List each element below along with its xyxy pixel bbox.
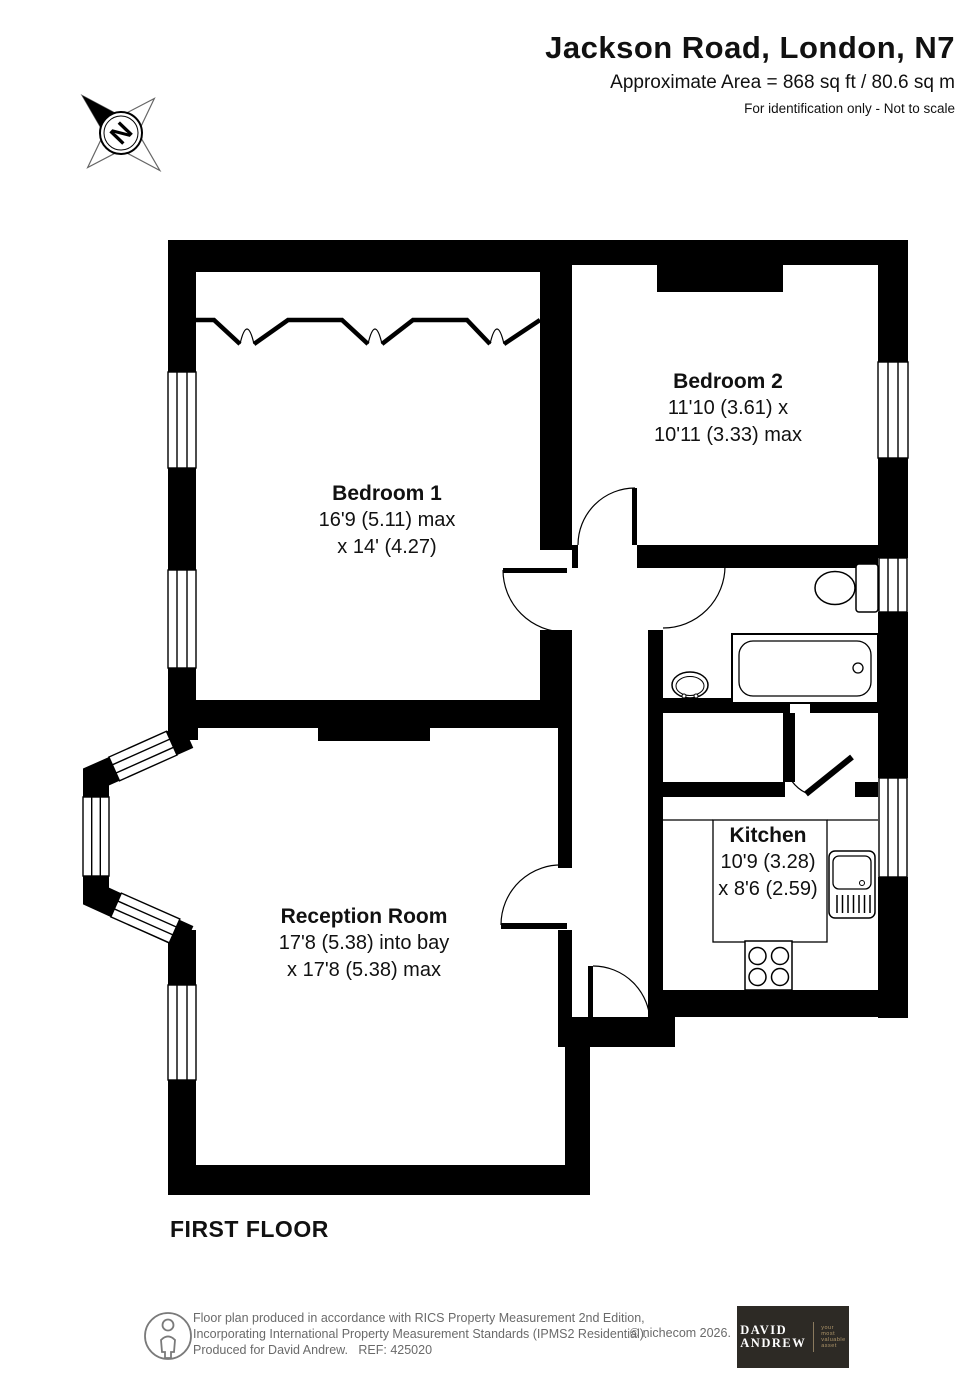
footer-line2: Incorporating International Property Mea… [193,1327,647,1341]
floorplan-page: Jackson Road, London, N7 Approximate Are… [0,0,980,1385]
floor-name: FIRST FLOOR [170,1216,329,1243]
bedroom1-door [503,568,567,632]
footer-disclaimer: Floor plan produced in accordance with R… [193,1310,647,1358]
room-dim: 17'8 (5.38) into bay [279,930,450,957]
toilet [815,564,878,612]
nichecom-copyright: © nichecom 2026. [630,1326,731,1340]
logo-tagline: your most valuable asset [821,1325,846,1349]
room-name: Bedroom 1 [319,480,456,507]
footer-line3: Produced for David Andrew. REF: 425020 [193,1343,432,1357]
room-dim: 10'11 (3.33) max [654,422,802,449]
bathtub [732,634,878,703]
bathroom-door [663,563,725,628]
david-andrew-logo: DAVID ANDREW your most valuable asset [737,1306,849,1368]
room-label-bedroom1: Bedroom 1 16'9 (5.11) max x 14' (4.27) [319,480,456,561]
logo-divider [813,1322,814,1352]
bathroom-fixtures [672,564,878,703]
kitchen-door [785,757,852,794]
hob [745,941,792,990]
logo-name: DAVID ANDREW [740,1324,806,1350]
room-label-kitchen: Kitchen 10'9 (3.28) x 8'6 (2.59) [718,822,817,903]
room-label-reception: Reception Room 17'8 (5.38) into bay x 17… [279,903,450,984]
kitchen-sink [829,851,875,918]
room-name: Reception Room [279,903,450,930]
doors [501,488,852,1028]
room-label-bedroom2: Bedroom 2 11'10 (3.61) x 10'11 (3.33) ma… [654,368,802,449]
room-name: Kitchen [718,822,817,849]
room-name: Bedroom 2 [654,368,802,395]
room-dim: x 14' (4.27) [319,534,456,561]
room-dim: 16'9 (5.11) max [319,507,456,534]
room-dim: 11'10 (3.61) x [654,395,802,422]
bathroom-sink [672,672,708,698]
room-dim: x 17'8 (5.38) max [279,957,450,984]
compass-icon: N [49,61,193,205]
room-dim: 10'9 (3.28) [718,849,817,876]
person-icon [145,1313,191,1359]
bedroom2-door [578,488,637,545]
reception-door [501,865,567,929]
room-dim: x 8'6 (2.59) [718,876,817,903]
footer-line1: Floor plan produced in accordance with R… [193,1311,645,1325]
floor-plan-svg: N [0,0,980,1385]
wardrobe-bifold-doors [196,320,540,344]
